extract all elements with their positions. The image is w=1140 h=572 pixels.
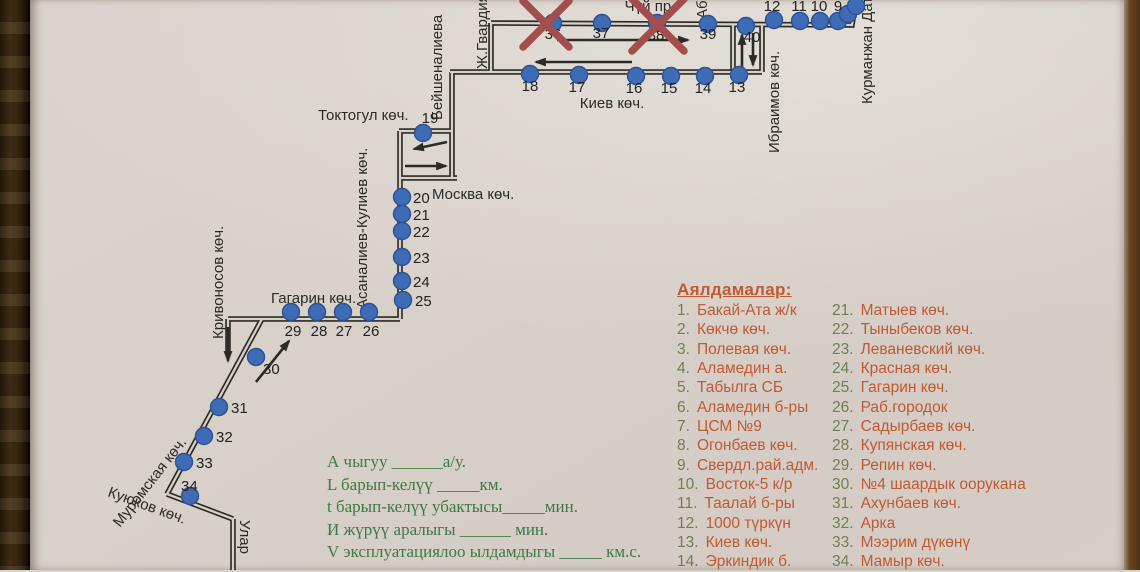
- legend-item-number: 14.: [677, 553, 699, 570]
- stop-number-25: 25: [415, 293, 432, 310]
- stop-dot-33: [176, 454, 193, 471]
- legend-item-number: 23.: [832, 341, 854, 358]
- legend-item: 29.Репин көч.: [832, 456, 1026, 475]
- legend-item: 21.Матыев көч.: [832, 301, 1026, 320]
- worksheet-line: V эксплуатациялоо ылдамдыгы _____ км.с.: [327, 541, 641, 564]
- legend-item: 30.№4 шаардык оорукана: [832, 475, 1026, 494]
- legend-item-number: 3.: [677, 341, 690, 358]
- legend-item: 11.Таалай б-ры: [677, 494, 818, 513]
- legend-item-number: 8.: [677, 437, 690, 454]
- asanaliev-kuliev-st-label: Асаналиев-Кулиев көч.: [354, 148, 371, 309]
- stop-dot-19: [415, 125, 432, 142]
- legend-item: 33.Мээрим дүкөнү: [832, 533, 1026, 552]
- legend-item-name: Полевая көч.: [697, 341, 791, 358]
- krivonosov-st-label: Кривоносов көч.: [210, 226, 227, 339]
- legend-item: 31.Ахунбаев көч.: [832, 494, 1026, 513]
- legend-item-name: Арка: [861, 515, 896, 532]
- stop-dot-28: [309, 304, 326, 321]
- stop-number-10: 10: [811, 0, 828, 15]
- legend-item-name: Эркиндик б.: [706, 553, 792, 570]
- stop-number-30: 30: [263, 361, 280, 378]
- legend-item-name: Бакай-Ата ж/к: [697, 302, 797, 319]
- stop-number-31: 31: [231, 400, 248, 417]
- stop-dot-27: [335, 304, 352, 321]
- legend-item: 4.Аламедин а.: [677, 359, 818, 378]
- stop-number-14: 14: [695, 80, 712, 97]
- stop-number-20: 20: [413, 190, 430, 207]
- legend-item-number: 27.: [832, 418, 854, 435]
- legend-item-number: 13.: [677, 534, 699, 551]
- stop-number-13: 13: [729, 79, 746, 96]
- legend-item-number: 10.: [677, 476, 699, 493]
- legend-item-number: 26.: [832, 399, 854, 416]
- stop-dot-25: [395, 292, 412, 309]
- legend-item-name: Репин көч.: [861, 457, 937, 474]
- stop-dot-24: [394, 273, 411, 290]
- legend-item-name: Ахунбаев көч.: [861, 495, 962, 512]
- legend-item: 14.Эркиндик б.: [677, 552, 818, 571]
- worksheet-blanks: А чыгуу ______а/у.L барып-келүү _____км.…: [327, 451, 641, 564]
- legend-item-name: Мээрим дүкөнү: [861, 534, 971, 551]
- legend-item-number: 28.: [832, 437, 854, 454]
- stop-dot-29: [283, 304, 300, 321]
- legend-item-name: Свердл.рай.адм.: [697, 457, 818, 474]
- stop-number-11: 11: [791, 0, 807, 15]
- stop-dot-21: [394, 206, 411, 223]
- stop-dot-32: [196, 428, 213, 445]
- legend-item-number: 25.: [832, 379, 854, 396]
- legend-item-name: Огонбаев көч.: [697, 437, 798, 454]
- stop-number-26: 26: [363, 323, 380, 340]
- stop-number-16: 16: [626, 80, 643, 97]
- stop-number-17: 17: [569, 79, 586, 96]
- stop-number-33: 33: [196, 455, 213, 472]
- legend-item-number: 9.: [677, 457, 690, 474]
- legend-item-name: Леваневский көч.: [861, 341, 986, 358]
- legend-item-name: Садырбаев көч.: [861, 418, 976, 435]
- legend-item-number: 32.: [832, 515, 854, 532]
- legend-item-name: Аламедин б-ры: [697, 399, 808, 416]
- stop-number-32: 32: [216, 429, 233, 446]
- stop-dot-26: [361, 304, 378, 321]
- kiev-st-label: Киев көч.: [580, 95, 644, 112]
- stop-dot-10: [812, 13, 829, 30]
- stop-number-23: 23: [413, 250, 430, 267]
- legend-item-name: Красная көч.: [861, 360, 953, 377]
- legend-item-number: 22.: [832, 321, 854, 338]
- legend-item-number: 21.: [832, 302, 854, 319]
- legend-item-name: Киев көч.: [706, 534, 773, 551]
- legend-item-number: 4.: [677, 360, 690, 377]
- legend-item-name: №4 шаардык оорукана: [861, 476, 1026, 493]
- zh-gvardia-st-label: Ж.Гвардия: [474, 0, 491, 69]
- legend-item: 34.Мамыр көч.: [832, 552, 1026, 571]
- stop-number-12: 12: [764, 0, 781, 15]
- legend-item-name: Раб.городок: [861, 399, 948, 416]
- legend-item-number: 7.: [677, 418, 690, 435]
- worksheet-line: L барып-келүү _____км.: [327, 474, 641, 497]
- legend-item-name: Матыев көч.: [861, 302, 950, 319]
- stop-number-34: 34: [181, 478, 198, 495]
- arrow-left-loop: [414, 142, 447, 149]
- stop-dot-corner-1: [848, 0, 865, 15]
- legend-item: 10.Восток-5 к/р: [677, 475, 818, 494]
- legend-item: 8.Огонбаев көч.: [677, 436, 818, 455]
- legend-item: 27.Садырбаев көч.: [832, 417, 1026, 436]
- legend-item: 1.Бакай-Ата ж/к: [677, 301, 818, 320]
- stop-number-21: 21: [413, 207, 430, 224]
- legend-item-name: 1000 түркүн: [706, 515, 791, 532]
- stop-number-37: 37: [593, 25, 610, 42]
- legend-item-name: Таалай б-ры: [704, 495, 794, 512]
- stop-dot-20: [394, 189, 411, 206]
- legend-item-name: Табылга СБ: [697, 379, 783, 396]
- legend-title: Аялдамалар:: [677, 280, 792, 300]
- legend-item-number: 11.: [677, 495, 697, 512]
- stop-dot-11: [792, 13, 809, 30]
- stop-dot-30: [248, 349, 265, 366]
- stop-number-29: 29: [285, 323, 302, 340]
- legend-item-name: Көкчө көч.: [697, 321, 770, 338]
- stop-number-15: 15: [661, 80, 678, 97]
- legend-item-number: 1.: [677, 302, 690, 319]
- legend-item: 22.Тыныбеков көч.: [832, 320, 1026, 339]
- stop-dot-23: [394, 249, 411, 266]
- legend-item-name: Восток-5 к/р: [706, 476, 793, 493]
- stop-dot-31: [211, 399, 228, 416]
- stop-number-19: 19: [422, 110, 439, 127]
- moskva-st-label: Москва көч.: [432, 186, 514, 203]
- legend-item-number: 30.: [832, 476, 854, 493]
- stop-number-22: 22: [413, 224, 430, 241]
- stop-number-40: 40: [744, 29, 761, 46]
- legend-item: 6.Аламедин б-ры: [677, 398, 818, 417]
- ibraimov-st-label: Ибраимов көч.: [766, 51, 783, 153]
- worksheet-line: И жүрүү аралыгы ______ мин.: [327, 519, 641, 542]
- worksheet-line: t барып-келүү убактысы_____мин.: [327, 496, 641, 519]
- legend-item: 26.Раб.городок: [832, 398, 1026, 417]
- legend-item-number: 29.: [832, 457, 854, 474]
- worksheet-line: А чыгуу ______а/у.: [327, 451, 641, 474]
- kurmanzhan-datka-st-label: Курманжан Датка: [859, 0, 876, 104]
- legend-item: 28.Купянская көч.: [832, 436, 1026, 455]
- legend-item: 3.Полевая көч.: [677, 340, 818, 359]
- legend-column-1: 1.Бакай-Ата ж/к2.Көкчө көч.3.Полевая көч…: [677, 301, 818, 572]
- legend-column-2: 21.Матыев көч.22.Тыныбеков көч.23.Леване…: [832, 301, 1026, 572]
- legend-item-name: Гагарин көч.: [861, 379, 949, 396]
- legend-item-name: Купянская көч.: [861, 437, 967, 454]
- legend-item-name: Мамыр көч.: [861, 553, 945, 570]
- stop-number-39: 39: [700, 26, 717, 43]
- legend-item-number: 33.: [832, 534, 854, 551]
- legend-item-number: 2.: [677, 321, 690, 338]
- legend-item: 12.1000 түркүн: [677, 514, 818, 533]
- legend-item: 13.Киев көч.: [677, 533, 818, 552]
- legend-item: 7.ЦСМ №9: [677, 417, 818, 436]
- legend-item-number: 5.: [677, 379, 690, 396]
- ular-st-label: Улар: [236, 520, 253, 554]
- legend-item-name: Аламедин а.: [697, 360, 787, 377]
- legend-item: 25.Гагарин көч.: [832, 378, 1026, 397]
- legend-item-number: 34.: [832, 553, 854, 570]
- legend-item: 9.Свердл.рай.адм.: [677, 456, 818, 475]
- legend-item-number: 12.: [677, 515, 699, 532]
- legend-item: 23.Леваневский көч.: [832, 340, 1026, 359]
- stop-number-28: 28: [311, 323, 328, 340]
- legend-item-name: ЦСМ №9: [697, 418, 762, 435]
- stop-number-18: 18: [522, 78, 539, 95]
- beishenalieva-st-label: Бейшеналиева: [429, 14, 446, 120]
- stop-dot-22: [394, 223, 411, 240]
- legend-item-number: 6.: [677, 399, 690, 416]
- stop-number-9: 9: [834, 0, 842, 15]
- toktogul-st-label: Токтогул көч.: [318, 107, 409, 124]
- legend-item: 32.Арка: [832, 514, 1026, 533]
- legend-item-name: Тыныбеков көч.: [861, 321, 974, 338]
- legend-item-number: 24.: [832, 360, 854, 377]
- legend-item: 2.Көкчө көч.: [677, 320, 818, 339]
- legend-item: 5.Табылга СБ: [677, 378, 818, 397]
- stop-number-24: 24: [413, 274, 430, 291]
- legend-item: 24.Красная көч.: [832, 359, 1026, 378]
- stop-number-27: 27: [336, 323, 353, 340]
- legend-item-number: 31.: [832, 495, 854, 512]
